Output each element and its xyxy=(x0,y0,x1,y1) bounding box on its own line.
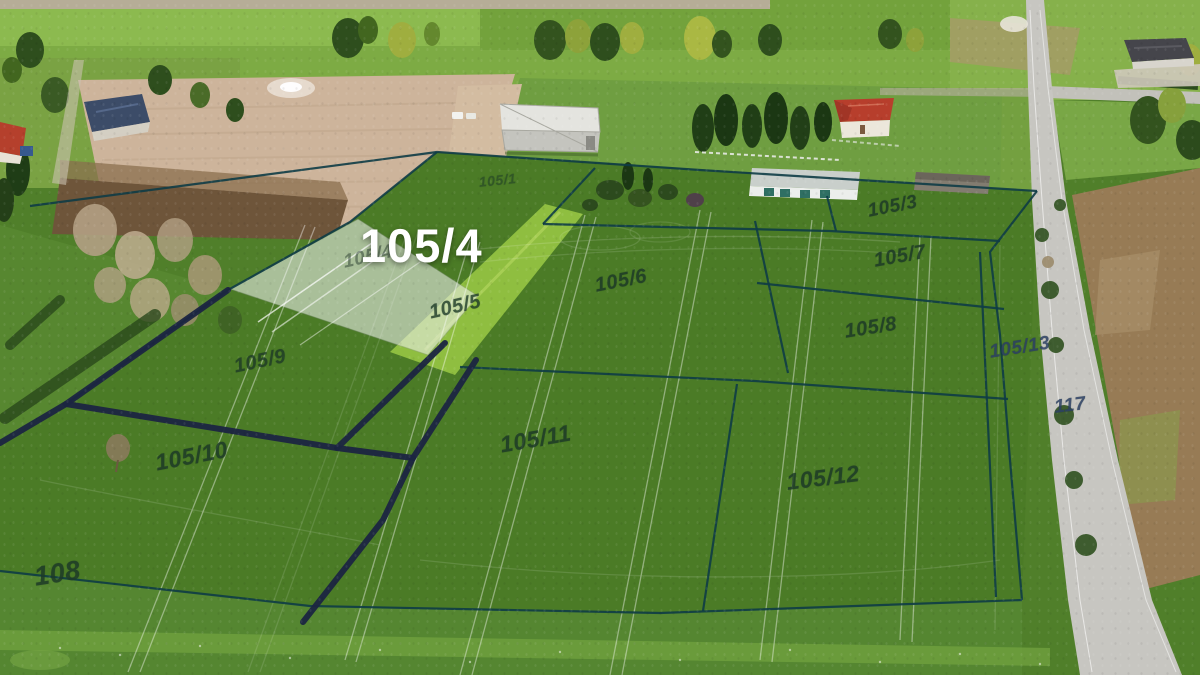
parcel-label-105-13: 105/13 xyxy=(988,332,1052,363)
aerial-parcel-map: 105/4 105/4 105/1 105/3 105/5 105/6 105/… xyxy=(0,0,1200,675)
parcel-label-105-8: 105/8 xyxy=(843,313,899,344)
highlighted-parcel-label: 105/4 xyxy=(360,218,483,273)
parcel-labels-layer: 105/4 105/4 105/1 105/3 105/5 105/6 105/… xyxy=(0,0,1200,675)
parcel-label-105-1: 105/1 xyxy=(478,170,517,190)
parcel-label-105-6: 105/6 xyxy=(593,265,649,298)
parcel-label-105-12: 105/12 xyxy=(785,460,861,496)
parcel-label-105-10: 105/10 xyxy=(153,436,230,477)
parcel-label-105-7: 105/7 xyxy=(872,241,928,273)
parcel-label-105-11: 105/11 xyxy=(498,420,573,459)
parcel-label-105-5: 105/5 xyxy=(427,290,483,324)
road-parcel-label-117: 117 xyxy=(1053,393,1087,419)
parcel-label-105-3: 105/3 xyxy=(866,191,919,222)
parcel-label-105-9: 105/9 xyxy=(232,345,288,378)
adjacent-parcel-label-108: 108 xyxy=(32,555,83,593)
